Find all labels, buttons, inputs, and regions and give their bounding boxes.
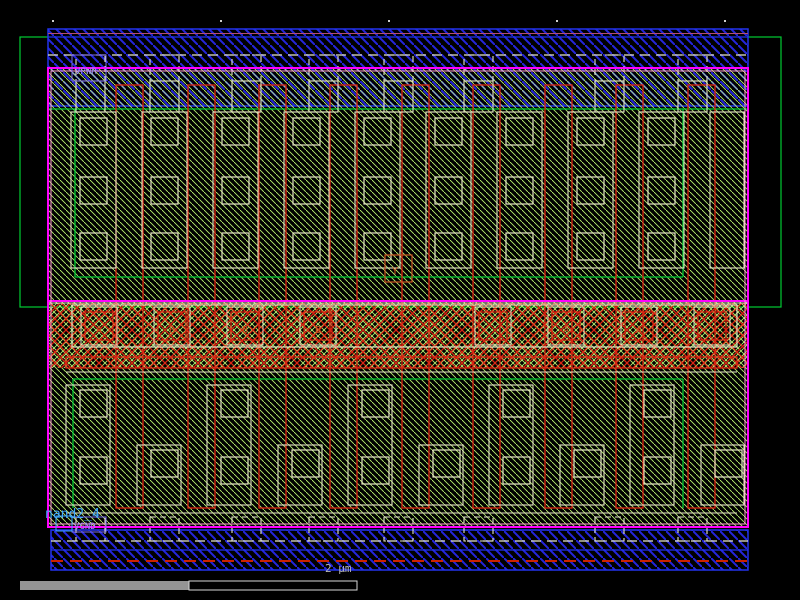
scalebar-label: 2 µm (325, 562, 352, 575)
vgnd-label: VGND (74, 522, 96, 532)
pin-label: A (563, 325, 569, 336)
pin-label: A (96, 325, 102, 336)
ruler-tick (220, 20, 222, 22)
layout-canvas[interactable]: ABBBAAYVPWRVGNDnand2_42 µm (0, 0, 800, 600)
instance-name-label[interactable]: nand2_4 (45, 507, 100, 522)
vpwr-label: VPWR (75, 67, 97, 77)
output-pin-label: Y (392, 266, 398, 277)
layout-viewport[interactable]: ABBBAAYVPWRVGNDnand2_42 µm (0, 0, 800, 600)
ruler-tick (52, 20, 54, 22)
pin-label: A (636, 325, 642, 336)
pin-label: B (169, 325, 175, 336)
ruler-tick (556, 20, 558, 22)
scalebar-filled-segment (20, 581, 189, 590)
ruler-tick (388, 20, 390, 22)
ruler-tick (724, 20, 726, 22)
pin-label: B (315, 325, 321, 336)
pin-label: B (242, 325, 248, 336)
